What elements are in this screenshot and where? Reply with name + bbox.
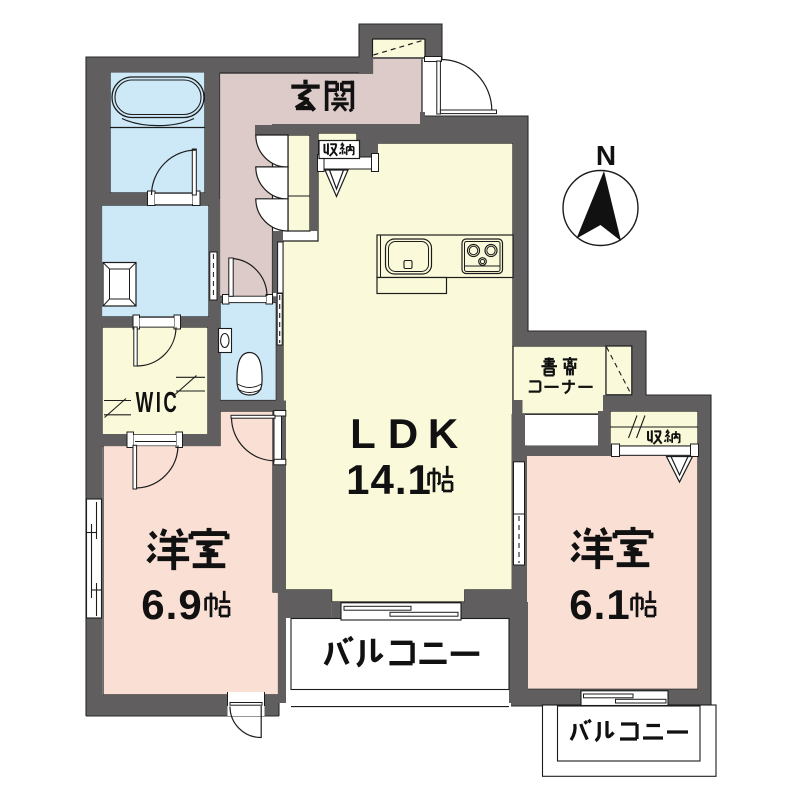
svg-text:D: D — [388, 410, 418, 457]
svg-text:14.1: 14.1 — [346, 456, 432, 503]
svg-text:6.1: 6.1 — [569, 581, 630, 628]
svg-text:K: K — [428, 410, 458, 457]
svg-text:6.9: 6.9 — [141, 581, 202, 628]
svg-text:WIC: WIC — [136, 387, 180, 419]
svg-text:N: N — [596, 140, 616, 171]
svg-text:L: L — [350, 410, 376, 457]
